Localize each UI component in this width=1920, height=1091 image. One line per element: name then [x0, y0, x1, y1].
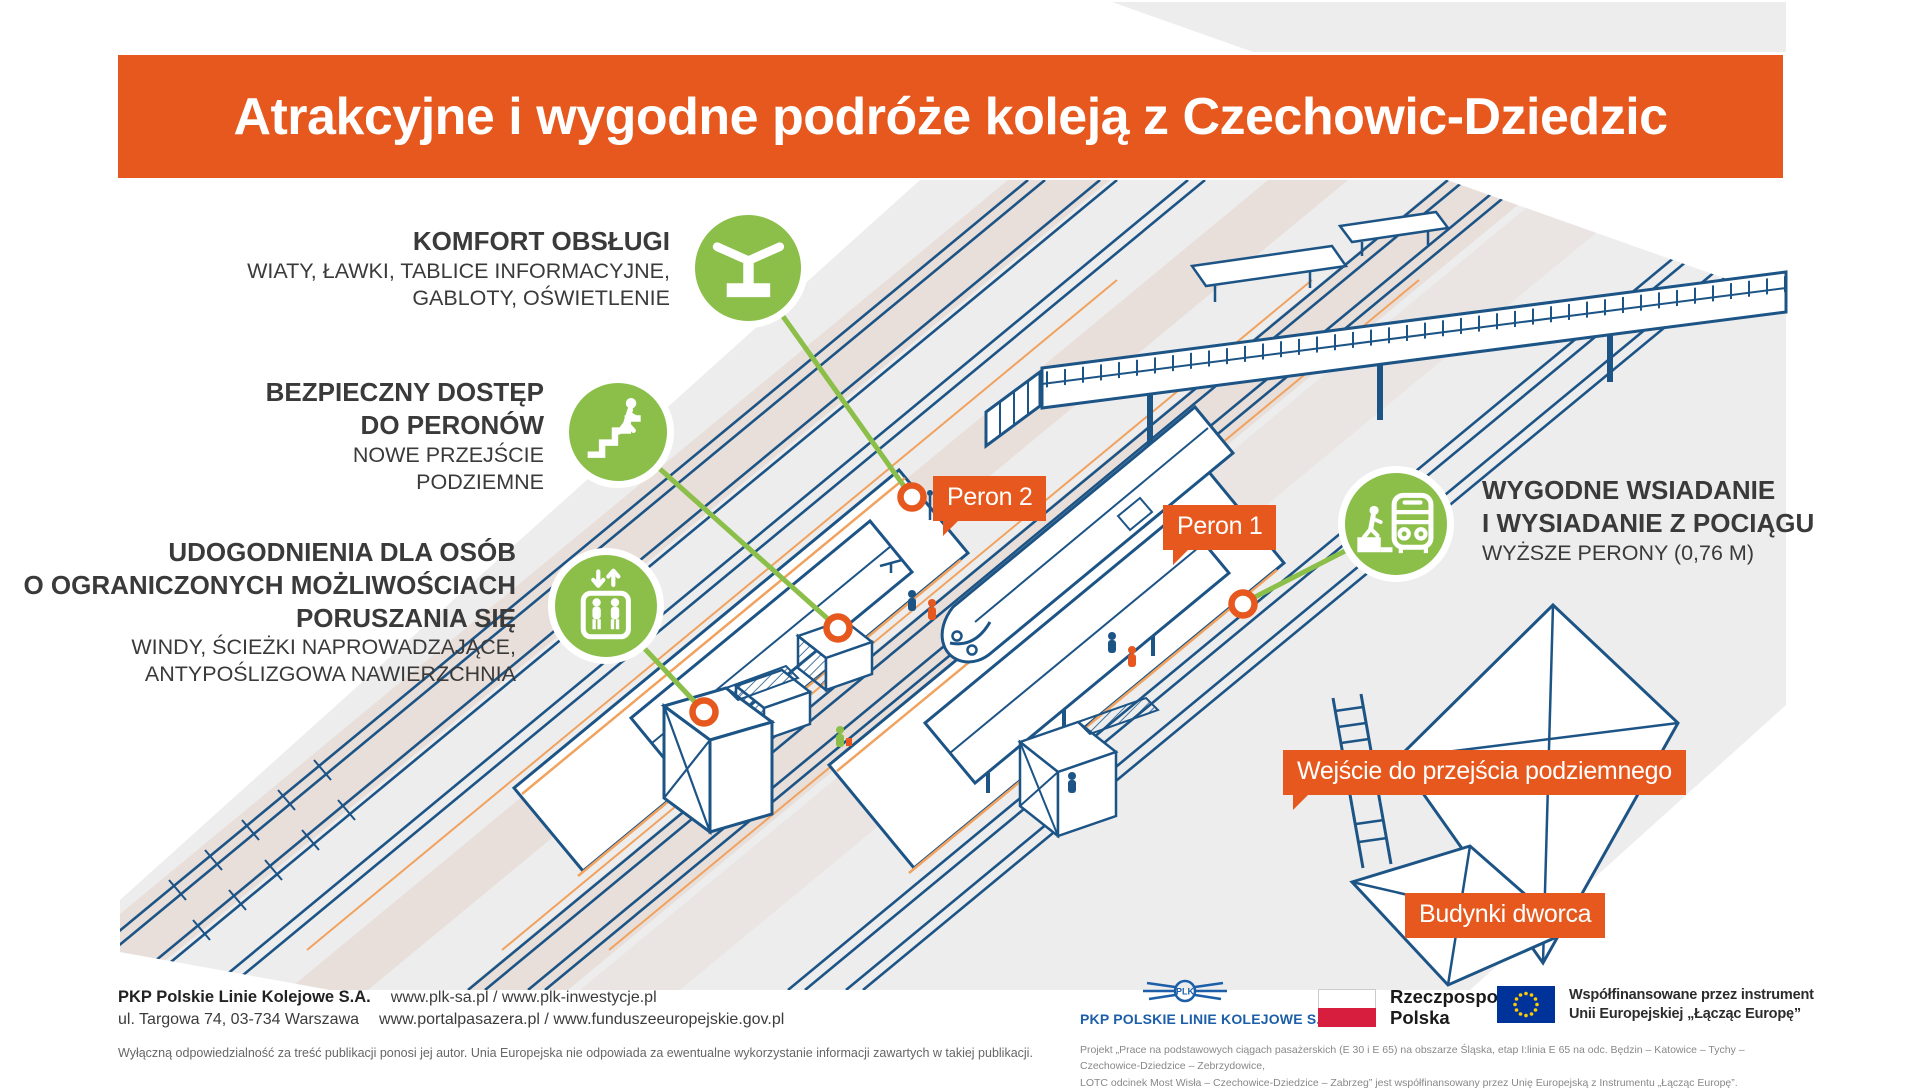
- svg-text:PLK: PLK: [1176, 987, 1195, 997]
- page-title: Atrakcyjne i wygodne podróże koleją z Cz…: [233, 87, 1667, 147]
- callout-circle-udogodnienia: [548, 548, 664, 664]
- eu-flag-icon: [1497, 986, 1555, 1023]
- poland-block: Rzeczpospolita Polska: [1318, 986, 1525, 1029]
- callout-circle-komfort: [688, 208, 808, 328]
- company-address: ul. Targowa 74, 03-734 Warszawa: [118, 1011, 359, 1029]
- project-line-2: LOTC odcinek Most Wisła – Czechowice-Dzi…: [1080, 1075, 1780, 1091]
- callout-circle-dostep: [562, 376, 674, 488]
- eu-funding-line1: Współfinansowane przez instrument: [1569, 986, 1814, 1005]
- label-station-buildings: Budynki dworca: [1405, 893, 1605, 938]
- company-name: PKP Polskie Linie Kolejowe S.A.: [118, 988, 371, 1007]
- callout-sub: NOWE PRZEJŚCIE: [266, 442, 544, 469]
- label-peron-1: Peron 1: [1163, 505, 1276, 550]
- callout-title: O OGRANICZONYCH MOŻLIWOŚCIACH: [23, 569, 516, 602]
- stairs-icon: [578, 392, 658, 472]
- callout-sub: WYŻSZE PERONY (0,76 M): [1482, 540, 1814, 567]
- callout-sub: GABLOTY, OŚWIETLENIE: [247, 285, 670, 312]
- pkp-winged-wheel-icon: PLK: [1137, 976, 1233, 1006]
- callout-title: PORUSZANIA SIĘ: [23, 602, 516, 635]
- callout-circle-wsiadanie: [1338, 466, 1454, 582]
- poland-flag-icon: [1318, 989, 1376, 1026]
- footer-links-1[interactable]: www.plk-sa.pl / www.plk-inwestycje.pl: [391, 989, 657, 1007]
- footer-disclaimer: Wyłączną odpowiedzialność za treść publi…: [118, 1046, 1033, 1060]
- canopy-icon: [705, 225, 792, 312]
- callout-text-wsiadanie: WYGODNE WSIADANIE I WYSIADANIE Z POCIĄGU…: [1482, 474, 1814, 567]
- callout-title: I WYSIADANIE Z POCIĄGU: [1482, 507, 1814, 540]
- pkp-plk-logo: PLK PKP POLSKIE LINIE KOLEJOWE S.A.: [1080, 976, 1290, 1027]
- eu-funding-line2: Unii Europejskiej „Łącząc Europę”: [1569, 1005, 1814, 1024]
- footer-left: PKP Polskie Linie Kolejowe S.A. www.plk-…: [118, 988, 784, 1029]
- footer-links-2[interactable]: www.portalpasazera.pl / www.funduszeeuro…: [379, 1011, 784, 1029]
- callout-title: KOMFORT OBSŁUGI: [247, 225, 670, 258]
- callout-title: BEZPIECZNY DOSTĘP: [266, 376, 544, 409]
- elevator-icon: [564, 564, 648, 648]
- callout-title: UDOGODNIENIA DLA OSÓB: [23, 536, 516, 569]
- callout-text-komfort: KOMFORT OBSŁUGI WIATY, ŁAWKI, TABLICE IN…: [247, 225, 670, 312]
- callout-text-dostep: BEZPIECZNY DOSTĘP DO PERONÓW NOWE PRZEJŚ…: [266, 376, 544, 496]
- callout-sub: PODZIEMNE: [266, 469, 544, 496]
- callout-title: WYGODNE WSIADANIE: [1482, 474, 1814, 507]
- label-underpass-entrance: Wejście do przejścia podziemnego: [1283, 750, 1686, 795]
- train-boarding-icon: [1354, 482, 1438, 566]
- project-line-1: Projekt „Prace na podstawowych ciągach p…: [1080, 1042, 1780, 1075]
- callout-text-udogodnienia: UDOGODNIENIA DLA OSÓB O OGRANICZONYCH MO…: [23, 536, 516, 688]
- callout-sub: ANTYPOŚLIZGOWA NAWIERZCHNIA: [23, 661, 516, 688]
- label-peron-2: Peron 2: [933, 476, 1046, 521]
- callout-title: DO PERONÓW: [266, 409, 544, 442]
- eu-block: Współfinansowane przez instrument Unii E…: [1497, 986, 1814, 1024]
- project-fine-print: Projekt „Prace na podstawowych ciągach p…: [1080, 1042, 1780, 1091]
- header-banner: Atrakcyjne i wygodne podróże koleją z Cz…: [118, 55, 1783, 178]
- pkp-logo-text: PKP POLSKIE LINIE KOLEJOWE S.A.: [1080, 1011, 1290, 1027]
- callout-sub: WIATY, ŁAWKI, TABLICE INFORMACYJNE,: [247, 258, 670, 285]
- callout-sub: WINDY, ŚCIEŻKI NAPROWADZAJĄCE,: [23, 634, 516, 661]
